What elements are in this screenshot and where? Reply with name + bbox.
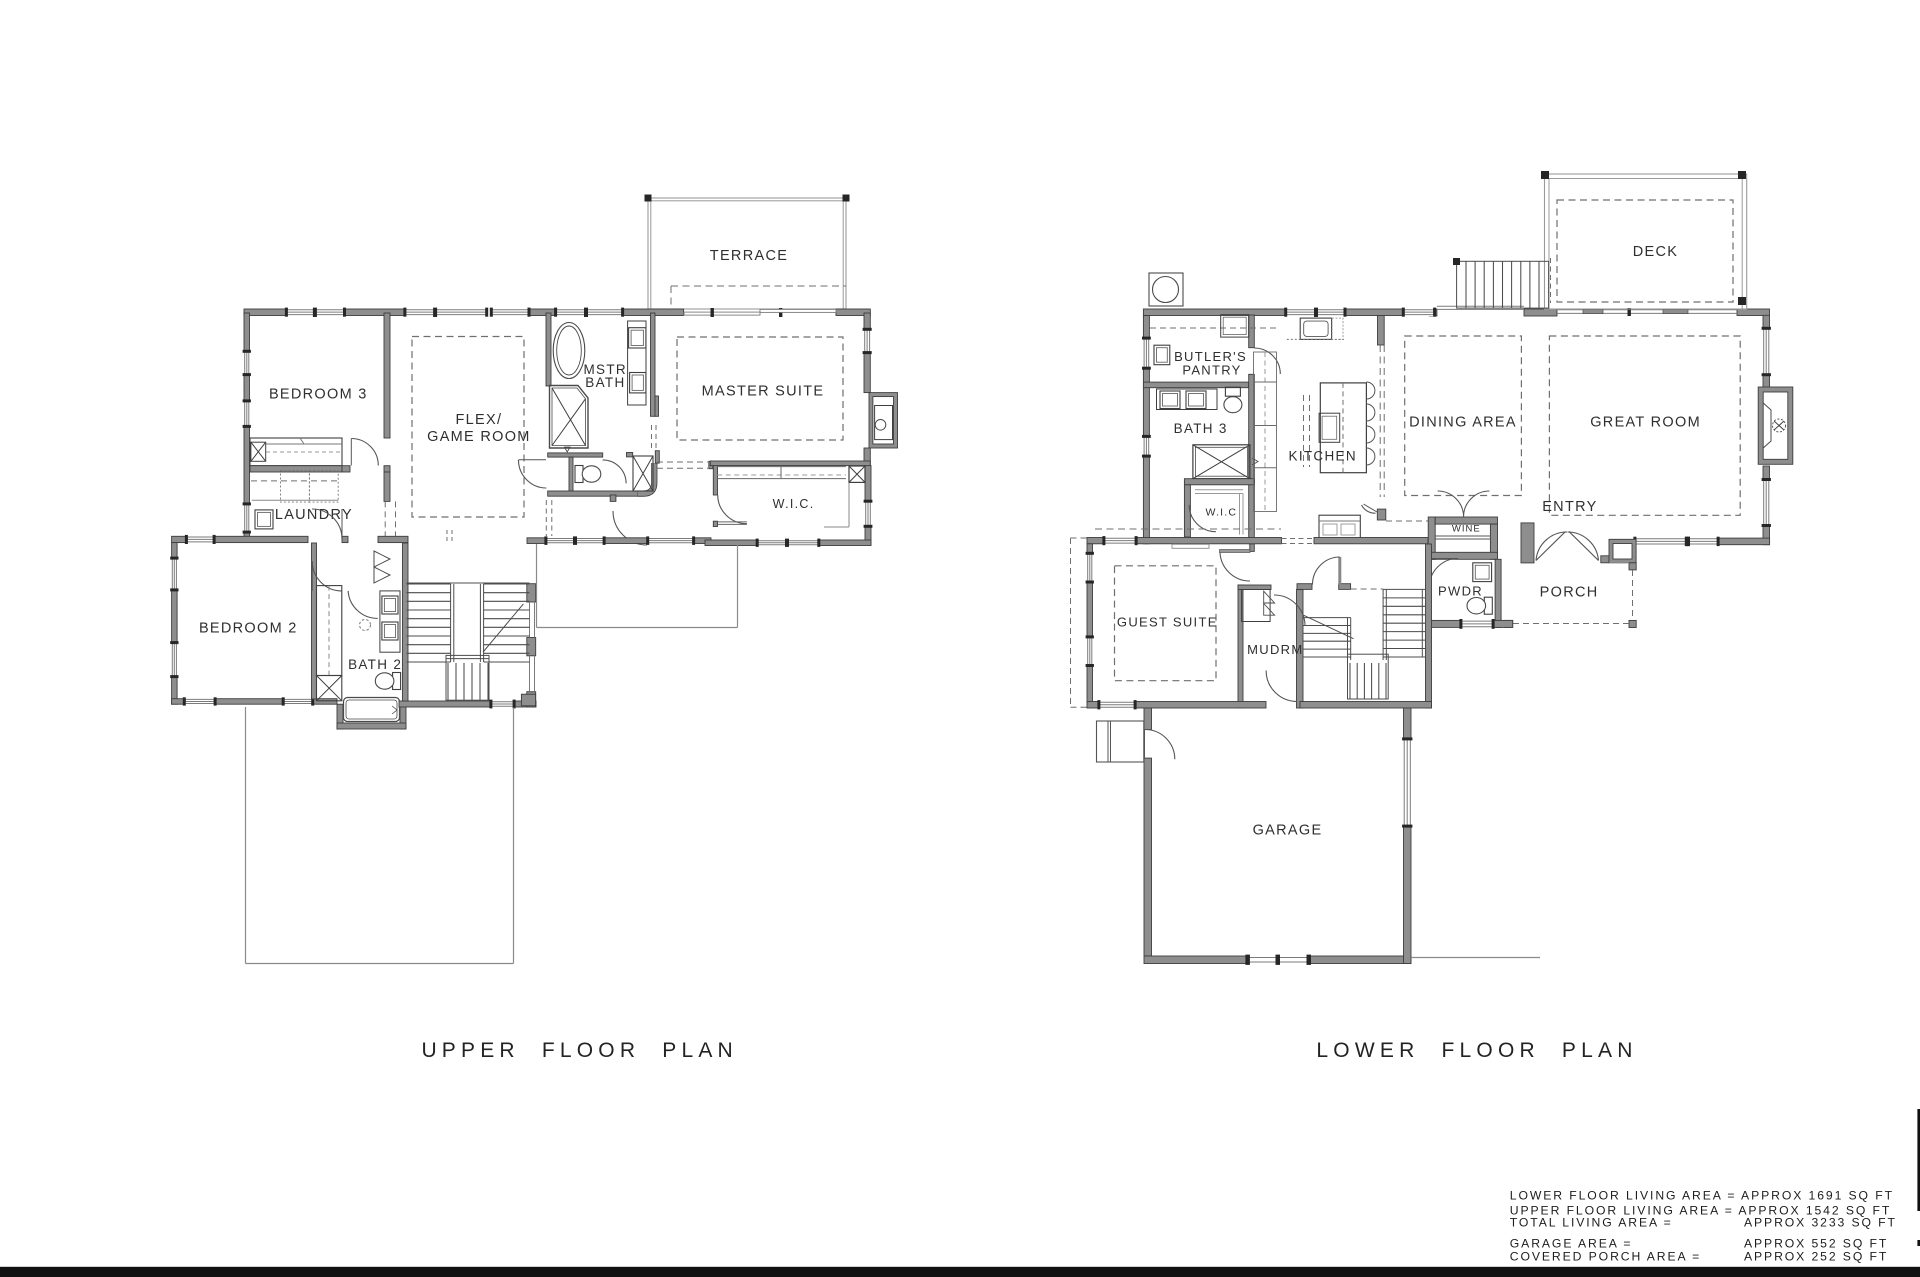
svg-text:LOWER FLOOR LIVING AREA = APPR: LOWER FLOOR LIVING AREA = APPROX 1691 SQ… [1510, 1189, 1894, 1203]
svg-text:MUDRM: MUDRM [1247, 642, 1303, 657]
svg-text:APPROX 3233 SQ FT: APPROX 3233 SQ FT [1744, 1216, 1897, 1230]
svg-text:BEDROOM 2: BEDROOM 2 [199, 621, 298, 637]
svg-text:PORCH: PORCH [1540, 585, 1599, 601]
svg-text:BATH: BATH [585, 375, 625, 390]
svg-text:TERRACE: TERRACE [710, 248, 788, 264]
svg-text:BATH 3: BATH 3 [1174, 421, 1228, 436]
svg-text:APPROX 252 SQ FT: APPROX 252 SQ FT [1744, 1250, 1888, 1264]
svg-text:GREAT ROOM: GREAT ROOM [1590, 415, 1701, 431]
svg-text:APPROX 552 SQ FT: APPROX 552 SQ FT [1744, 1237, 1888, 1251]
svg-text:ENTRY: ENTRY [1542, 499, 1597, 515]
svg-text:W.I.C: W.I.C [1205, 507, 1237, 519]
svg-text:MASTER SUITE: MASTER SUITE [702, 384, 825, 400]
svg-text:W.I.C.: W.I.C. [773, 497, 815, 511]
svg-text:GUEST SUITE: GUEST SUITE [1117, 615, 1218, 630]
svg-text:BEDROOM 3: BEDROOM 3 [269, 387, 368, 403]
svg-text:FLEX/: FLEX/ [456, 412, 503, 428]
svg-text:PWDR: PWDR [1438, 584, 1483, 599]
svg-text:GARAGE AREA =: GARAGE AREA = [1510, 1237, 1633, 1251]
svg-text:GAME ROOM: GAME ROOM [427, 429, 531, 445]
svg-text:COVERED PORCH AREA =: COVERED PORCH AREA = [1510, 1250, 1701, 1264]
svg-text:DECK: DECK [1633, 244, 1679, 260]
svg-text:TOTAL LIVING AREA =: TOTAL LIVING AREA = [1510, 1216, 1673, 1230]
svg-text:BATH 2: BATH 2 [348, 657, 402, 672]
svg-text:WINE: WINE [1452, 524, 1481, 535]
svg-text:DINING AREA: DINING AREA [1409, 415, 1517, 431]
svg-text:KITCHEN: KITCHEN [1289, 449, 1357, 464]
svg-text:GARAGE: GARAGE [1253, 823, 1323, 839]
svg-text:LOWER FLOOR PLAN: LOWER FLOOR PLAN [1316, 1039, 1637, 1062]
svg-text:UPPER FLOOR PLAN: UPPER FLOOR PLAN [421, 1039, 738, 1062]
svg-text:PANTRY: PANTRY [1182, 363, 1241, 378]
